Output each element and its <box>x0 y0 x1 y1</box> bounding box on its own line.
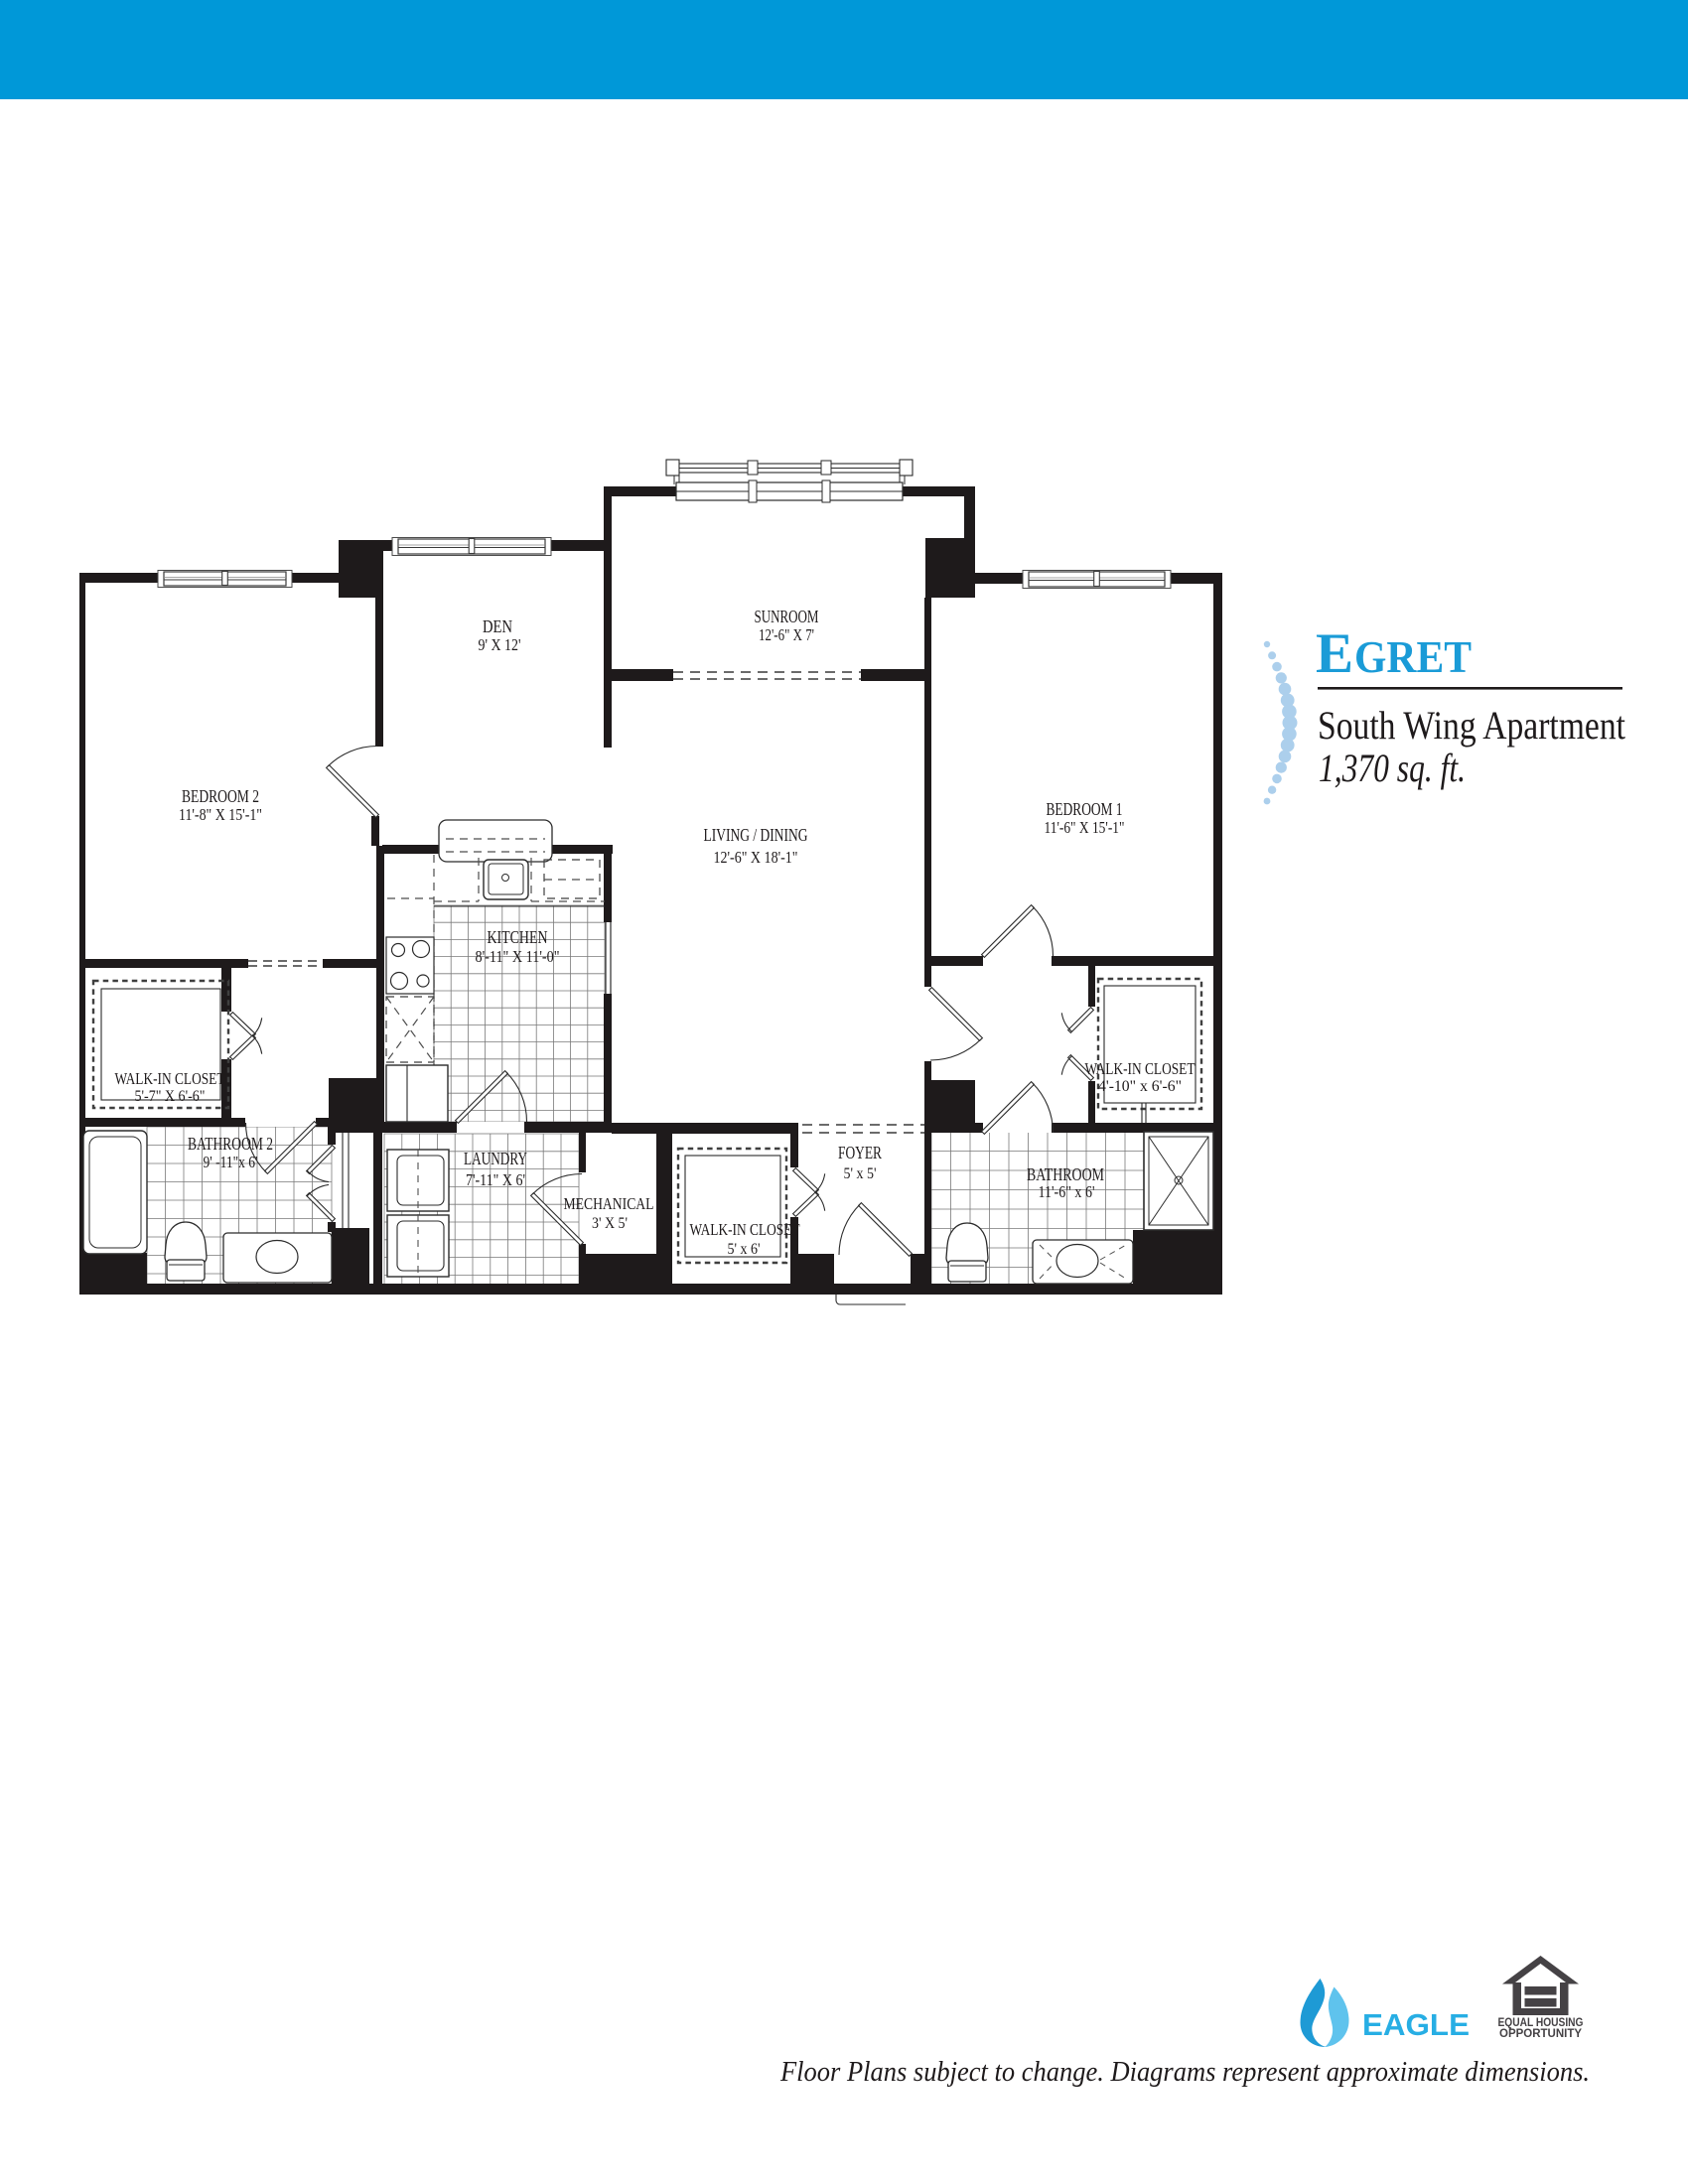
svg-text:OPPORTUNITY: OPPORTUNITY <box>1499 2028 1582 2040</box>
svg-text:E: E <box>1316 622 1353 685</box>
svg-text:WALK-IN CLOSET: WALK-IN CLOSET <box>115 1069 225 1088</box>
svg-text:DEN: DEN <box>483 616 512 636</box>
svg-text:KITCHEN: KITCHEN <box>488 927 548 947</box>
svg-text:BEDROOM 1: BEDROOM 1 <box>1047 799 1123 819</box>
svg-text:1,370 sq. ft.: 1,370 sq. ft. <box>1319 746 1466 790</box>
svg-text:BATHROOM 2: BATHROOM 2 <box>188 1134 273 1154</box>
svg-text:7'-11" X 6': 7'-11" X 6' <box>466 1170 525 1189</box>
svg-text:11'-8" X 15'-1": 11'-8" X 15'-1" <box>179 805 262 824</box>
svg-text:3' X 5': 3' X 5' <box>592 1215 628 1232</box>
svg-text:12'-6" X 7': 12'-6" X 7' <box>759 625 814 644</box>
svg-text:11'-6" X 15'-1": 11'-6" X 15'-1" <box>1045 818 1125 837</box>
svg-text:4'-10" x 6'-6": 4'-10" x 6'-6" <box>1098 1078 1182 1095</box>
svg-text:12'-6" X 18'-1": 12'-6" X 18'-1" <box>714 848 798 867</box>
svg-text:WALK-IN CLOSET: WALK-IN CLOSET <box>1085 1059 1196 1078</box>
svg-text:BEDROOM 2: BEDROOM 2 <box>182 786 259 806</box>
svg-text:MECHANICAL: MECHANICAL <box>564 1194 654 1213</box>
svg-text:EAGLE: EAGLE <box>1362 2007 1470 2042</box>
svg-text:8'-11" X 11'-0": 8'-11" X 11'-0" <box>476 947 560 966</box>
svg-text:9' X 12': 9' X 12' <box>479 635 521 654</box>
svg-text:GRET: GRET <box>1354 631 1472 682</box>
svg-text:5' x 5': 5' x 5' <box>844 1165 877 1182</box>
svg-text:5' x 6': 5' x 6' <box>728 1241 761 1258</box>
svg-text:9' -11"x 6': 9' -11"x 6' <box>204 1153 258 1171</box>
svg-text:BATHROOM: BATHROOM <box>1027 1164 1104 1184</box>
svg-text:WALK-IN CLOSET: WALK-IN CLOSET <box>690 1220 800 1239</box>
svg-text:SUNROOM: SUNROOM <box>755 607 819 626</box>
svg-text:5'-7" X 6'-6": 5'-7" X 6'-6" <box>135 1088 206 1105</box>
svg-text:Floor Plans subject to change.: Floor Plans subject to change. Diagrams … <box>779 2056 1590 2088</box>
svg-text:11'-6" x 6': 11'-6" x 6' <box>1039 1182 1095 1201</box>
svg-text:LAUNDRY: LAUNDRY <box>464 1149 527 1168</box>
svg-text:LIVING / DINING: LIVING / DINING <box>704 825 808 845</box>
svg-text:FOYER: FOYER <box>838 1143 882 1162</box>
svg-text:South Wing Apartment: South Wing Apartment <box>1318 703 1625 748</box>
